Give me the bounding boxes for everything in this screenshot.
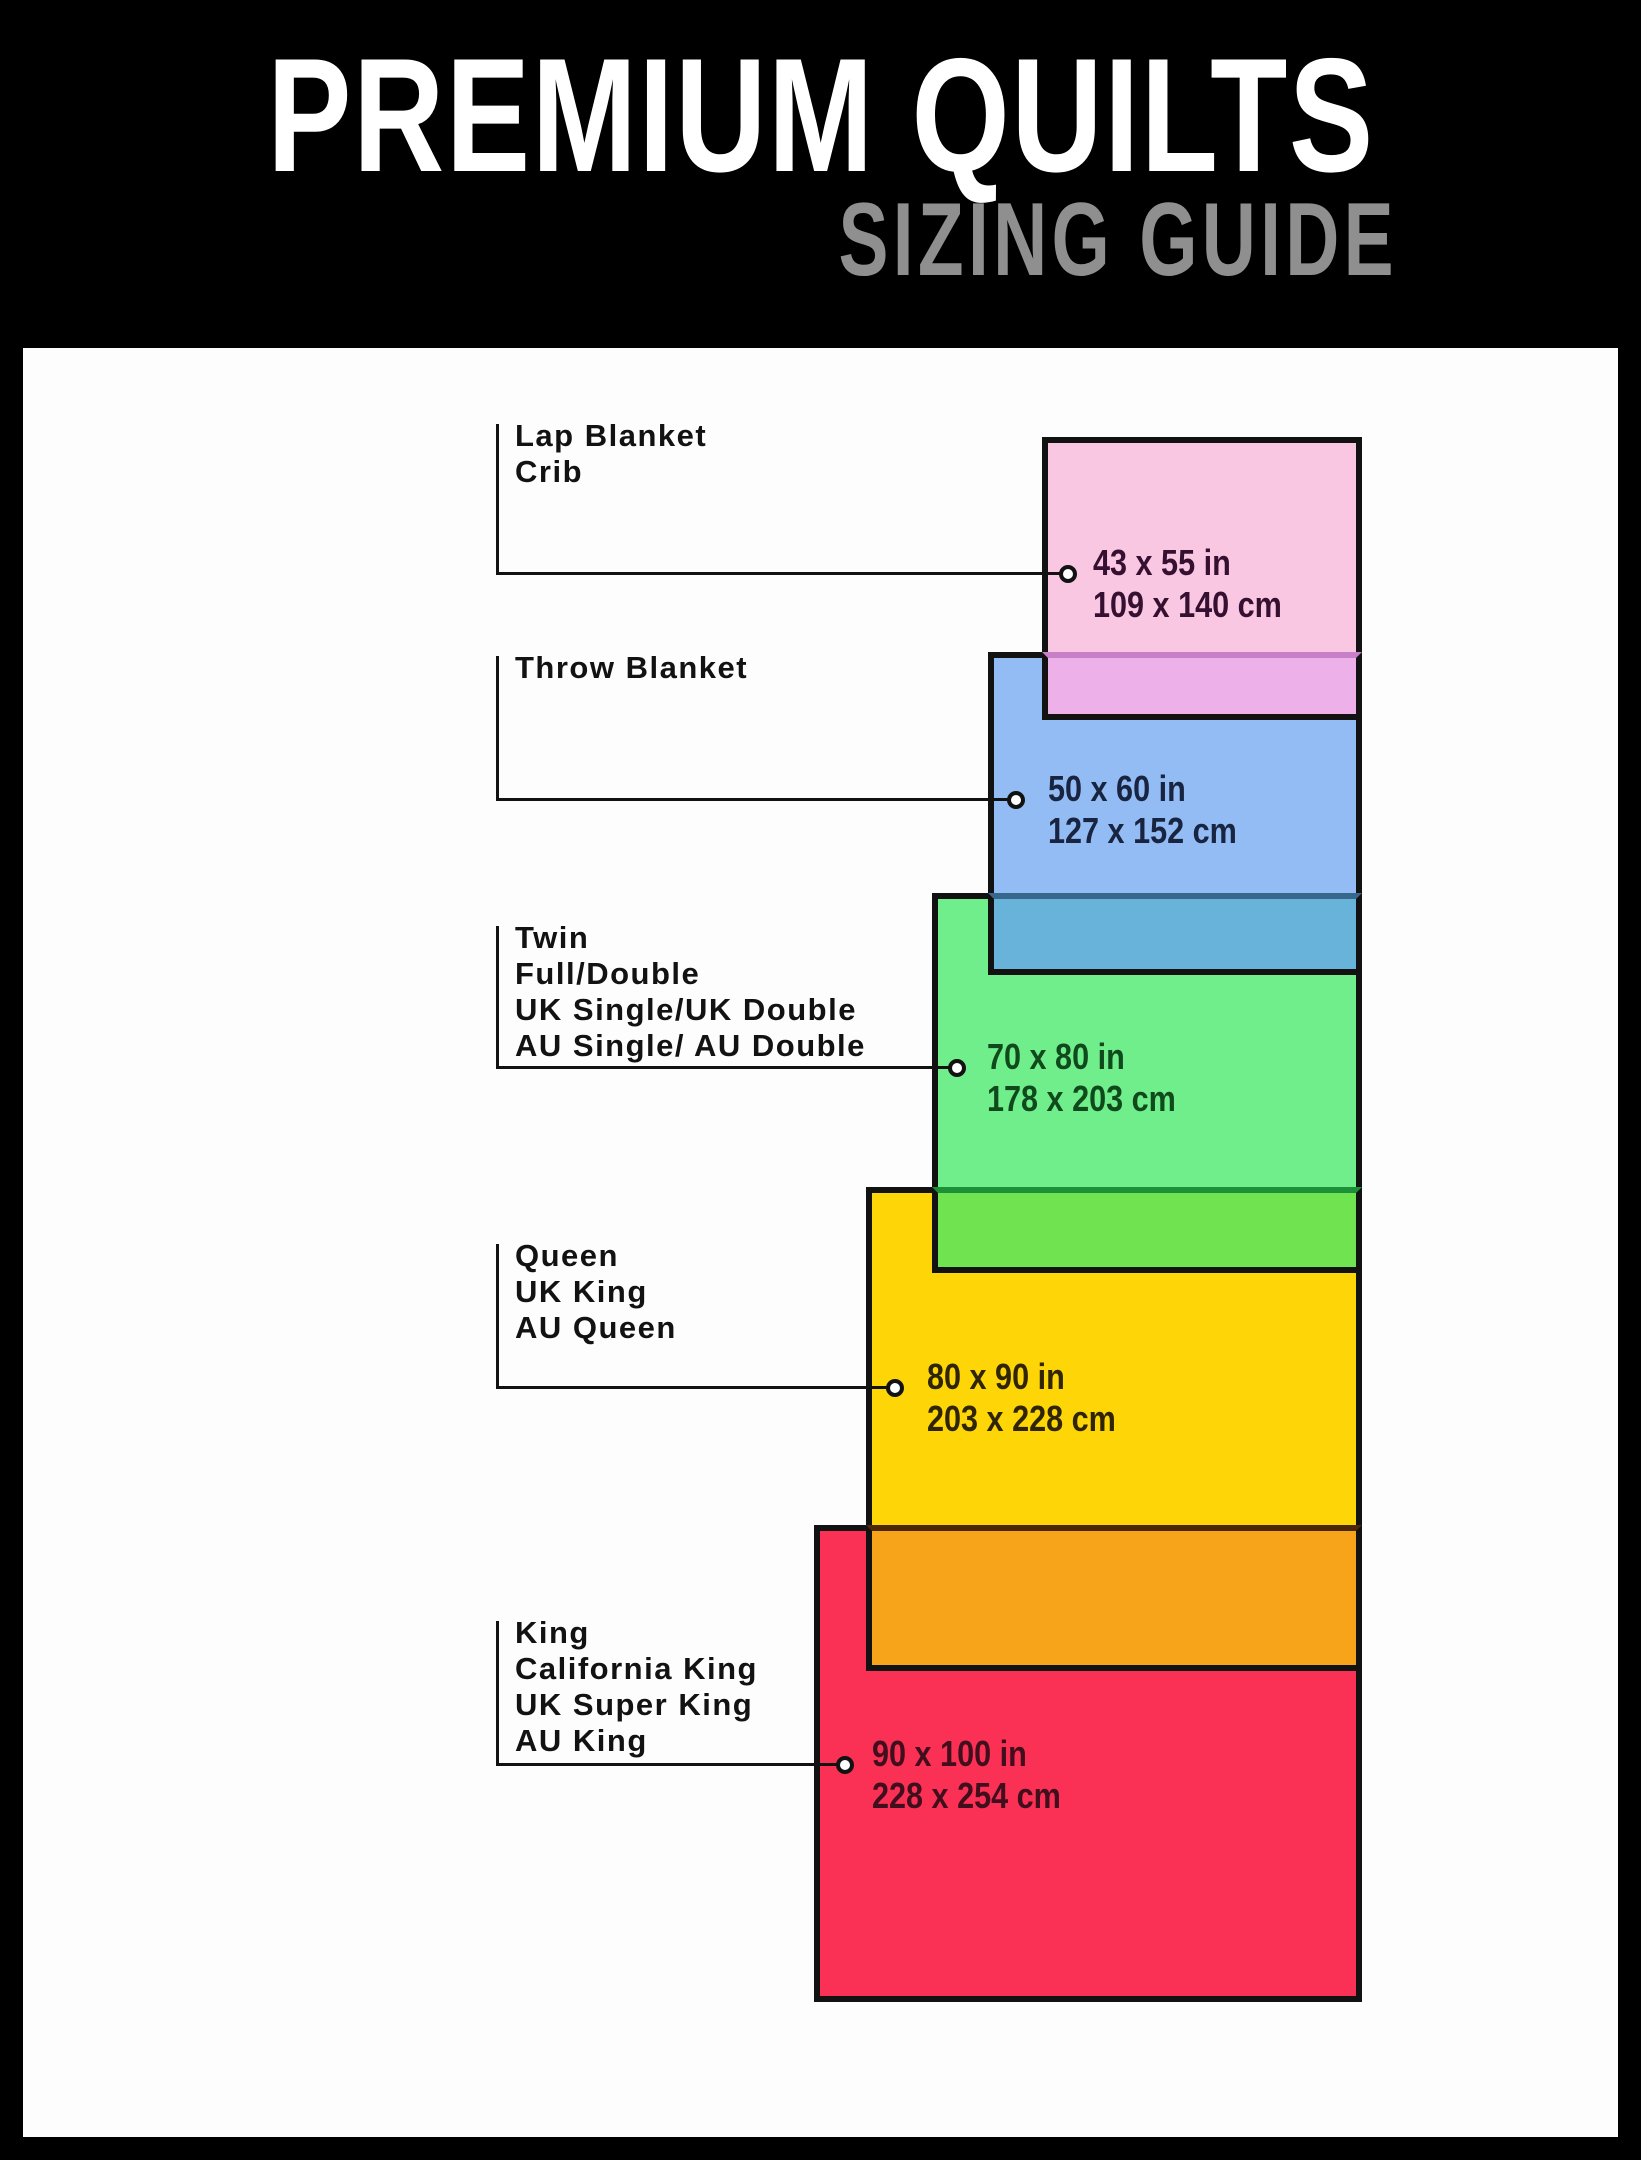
- label-line: AU King: [515, 1723, 758, 1759]
- dim-inches-king: 90 x 100 in: [872, 1736, 1027, 1772]
- marker-dot-queen: [886, 1379, 904, 1397]
- label-line: Twin: [515, 920, 866, 956]
- dim-cm-queen: 203 x 228 cm: [927, 1401, 1116, 1437]
- label-line: Throw Blanket: [515, 650, 748, 686]
- label-line: AU Queen: [515, 1310, 677, 1346]
- leader-vline-throw: [496, 656, 499, 801]
- header-banner: PREMIUM QUILTS SIZING GUIDE: [0, 0, 1641, 348]
- page-title: PREMIUM QUILTS: [267, 35, 1375, 197]
- marker-dot-lap: [1059, 565, 1077, 583]
- leader-vline-queen: [496, 1244, 499, 1389]
- marker-dot-king: [836, 1756, 854, 1774]
- leader-hline-throw: [496, 798, 1016, 801]
- leader-vline-twin: [496, 926, 499, 1069]
- leader-hline-lap: [496, 572, 1068, 575]
- title-wrap: PREMIUM QUILTS: [0, 35, 1641, 197]
- dim-inches-throw: 50 x 60 in: [1048, 771, 1186, 807]
- leader-hline-king: [496, 1763, 845, 1766]
- overlap-band-queen-over-king: [866, 1525, 1362, 1671]
- label-line: UK King: [515, 1274, 677, 1310]
- dim-cm-throw: 127 x 152 cm: [1048, 813, 1237, 849]
- dim-inches-twin: 70 x 80 in: [987, 1039, 1125, 1075]
- marker-dot-throw: [1007, 791, 1025, 809]
- leader-vline-lap: [496, 424, 499, 575]
- marker-dot-twin: [948, 1059, 966, 1077]
- leader-hline-twin: [496, 1066, 957, 1069]
- label-line: Queen: [515, 1238, 677, 1274]
- label-line: King: [515, 1615, 758, 1651]
- sizing-guide-infographic: PREMIUM QUILTS SIZING GUIDE Lap Blanket …: [0, 0, 1641, 2160]
- label-lap-crib: Lap Blanket Crib: [515, 418, 707, 490]
- overlap-band-lap-over-throw: [1042, 652, 1362, 720]
- label-line: Crib: [515, 454, 707, 490]
- overlap-band-twin-over-queen: [932, 1187, 1362, 1273]
- dim-inches-queen: 80 x 90 in: [927, 1359, 1065, 1395]
- frame-border-left: [0, 348, 23, 2160]
- dim-cm-king: 228 x 254 cm: [872, 1778, 1061, 1814]
- label-line: Full/Double: [515, 956, 866, 992]
- dim-cm-twin: 178 x 203 cm: [987, 1081, 1176, 1117]
- leader-hline-queen: [496, 1386, 895, 1389]
- dim-cm-lap: 109 x 140 cm: [1093, 587, 1282, 623]
- page-subtitle: SIZING GUIDE: [839, 188, 1398, 292]
- label-queen: Queen UK King AU Queen: [515, 1238, 677, 1346]
- frame-border-bottom: [0, 2137, 1641, 2160]
- label-line: UK Single/UK Double: [515, 992, 866, 1028]
- label-line: California King: [515, 1651, 758, 1687]
- dim-inches-lap: 43 x 55 in: [1093, 545, 1231, 581]
- label-line: AU Single/ AU Double: [515, 1028, 866, 1064]
- label-line: Lap Blanket: [515, 418, 707, 454]
- leader-vline-king: [496, 1621, 499, 1766]
- label-throw: Throw Blanket: [515, 650, 748, 686]
- overlap-band-throw-over-twin: [988, 893, 1362, 975]
- label-line: UK Super King: [515, 1687, 758, 1723]
- label-king: King California King UK Super King AU Ki…: [515, 1615, 758, 1759]
- frame-border-right: [1618, 348, 1641, 2160]
- label-twin: Twin Full/Double UK Single/UK Double AU …: [515, 920, 866, 1064]
